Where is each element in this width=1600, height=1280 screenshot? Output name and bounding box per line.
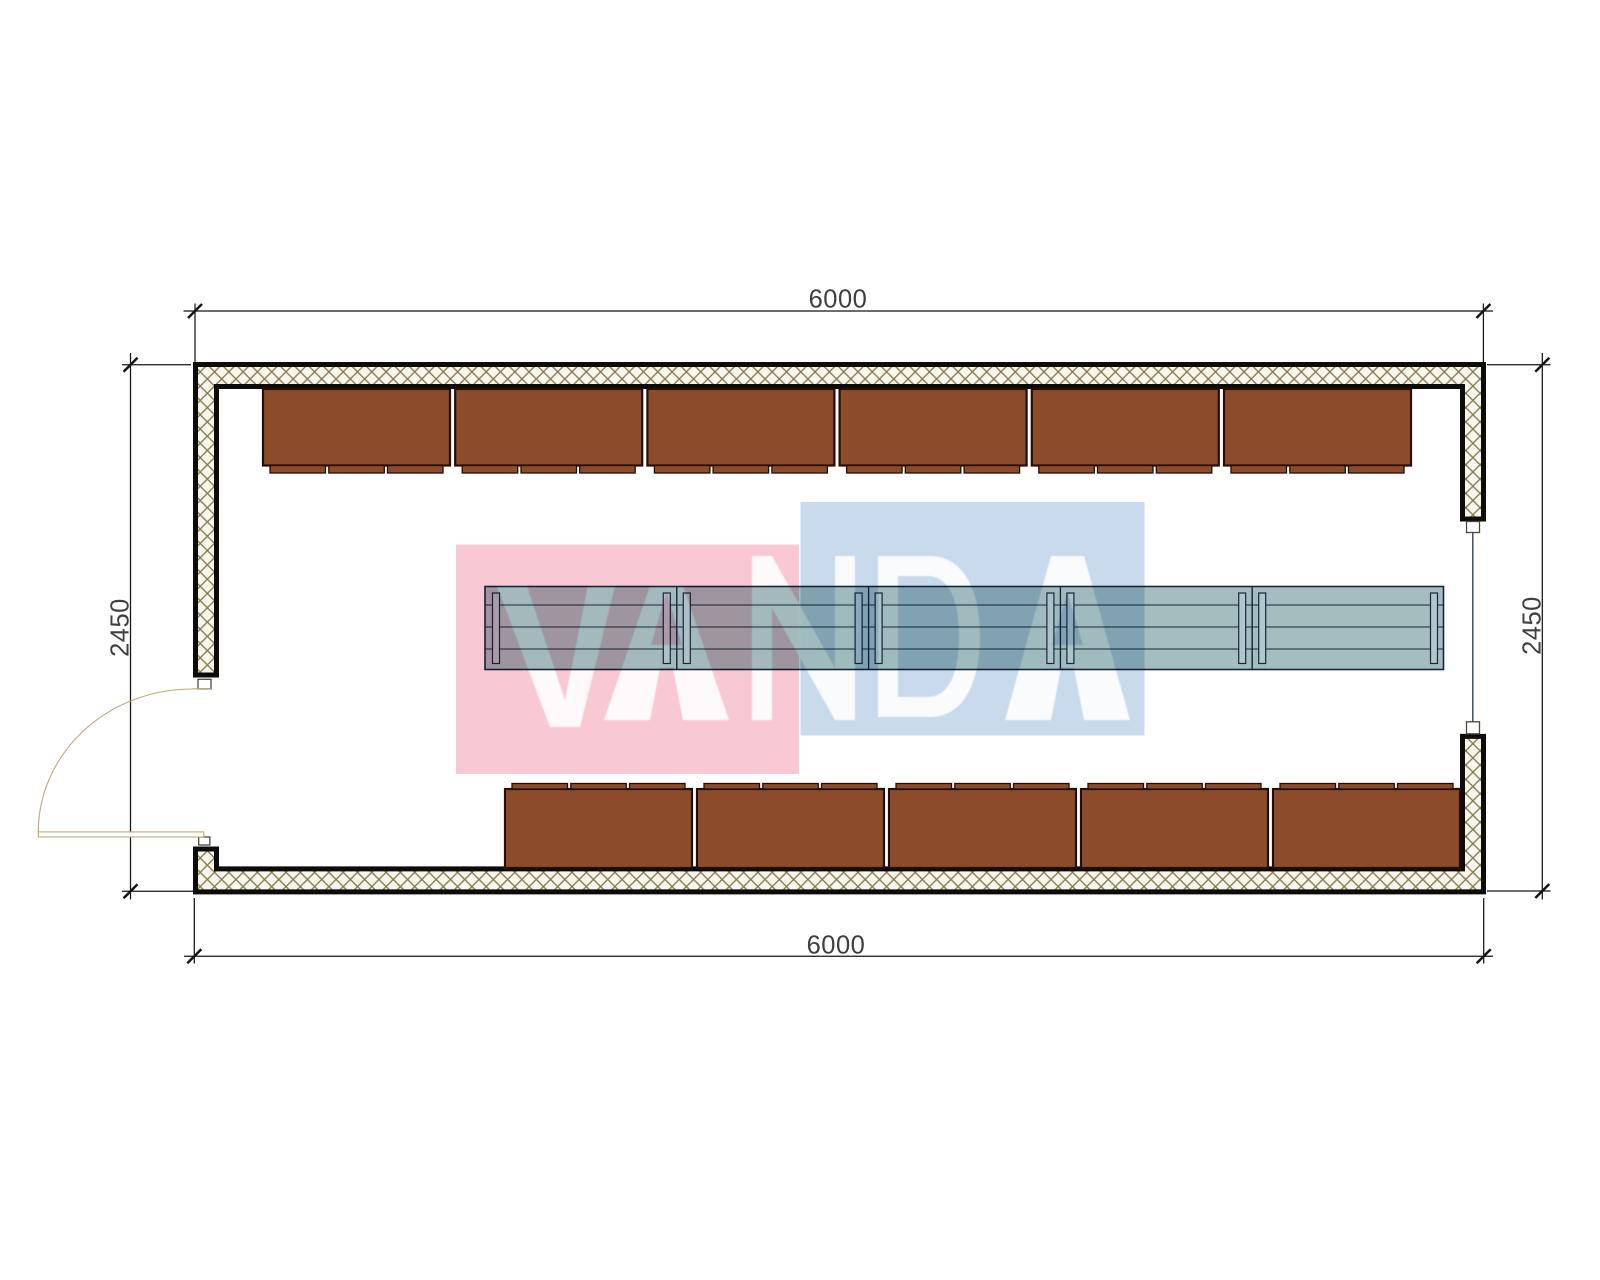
svg-text:6000: 6000	[807, 932, 866, 960]
svg-text:2450: 2450	[1519, 596, 1547, 655]
svg-text:6000: 6000	[809, 286, 868, 314]
svg-text:2450: 2450	[107, 598, 135, 657]
